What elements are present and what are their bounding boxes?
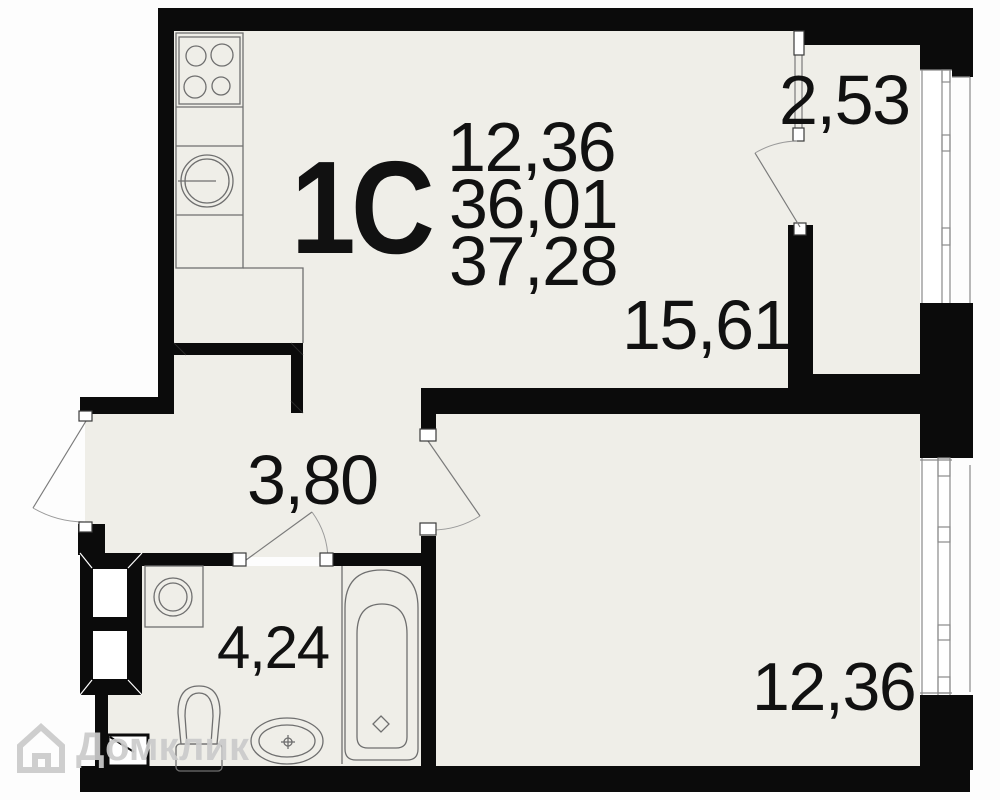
bathtub-icon xyxy=(342,566,418,764)
room-area-balcony: 2,53 xyxy=(779,65,910,135)
floor-plan: 1C 12,36 36,01 37,28 2,53 15,61 3,80 4,2… xyxy=(0,0,1000,800)
balcony-window xyxy=(920,70,970,303)
room-area-living: 15,61 xyxy=(622,290,790,360)
basin-icon xyxy=(251,718,323,764)
duct-shaft-detail xyxy=(80,553,142,695)
watermark-text: Домклик xyxy=(76,725,249,770)
stove-icon xyxy=(179,37,240,104)
domclick-house-icon xyxy=(12,718,70,776)
room-area-hall: 3,80 xyxy=(247,445,378,515)
bathroom-door xyxy=(233,512,333,566)
washing-machine-icon xyxy=(145,566,203,627)
room-area-bathroom: 4,24 xyxy=(217,618,329,678)
chamfer-marks xyxy=(174,343,303,413)
bedroom-window xyxy=(920,458,970,695)
kitchen-sink-icon xyxy=(178,155,233,207)
watermark: Домклик xyxy=(12,718,249,776)
bedroom-door xyxy=(420,429,480,535)
stat-total-area-with-balcony: 37,28 xyxy=(449,226,617,296)
unit-type-label: 1C xyxy=(291,142,430,274)
room-area-bedroom: 12,36 xyxy=(752,653,915,721)
entrance-door xyxy=(33,411,92,532)
